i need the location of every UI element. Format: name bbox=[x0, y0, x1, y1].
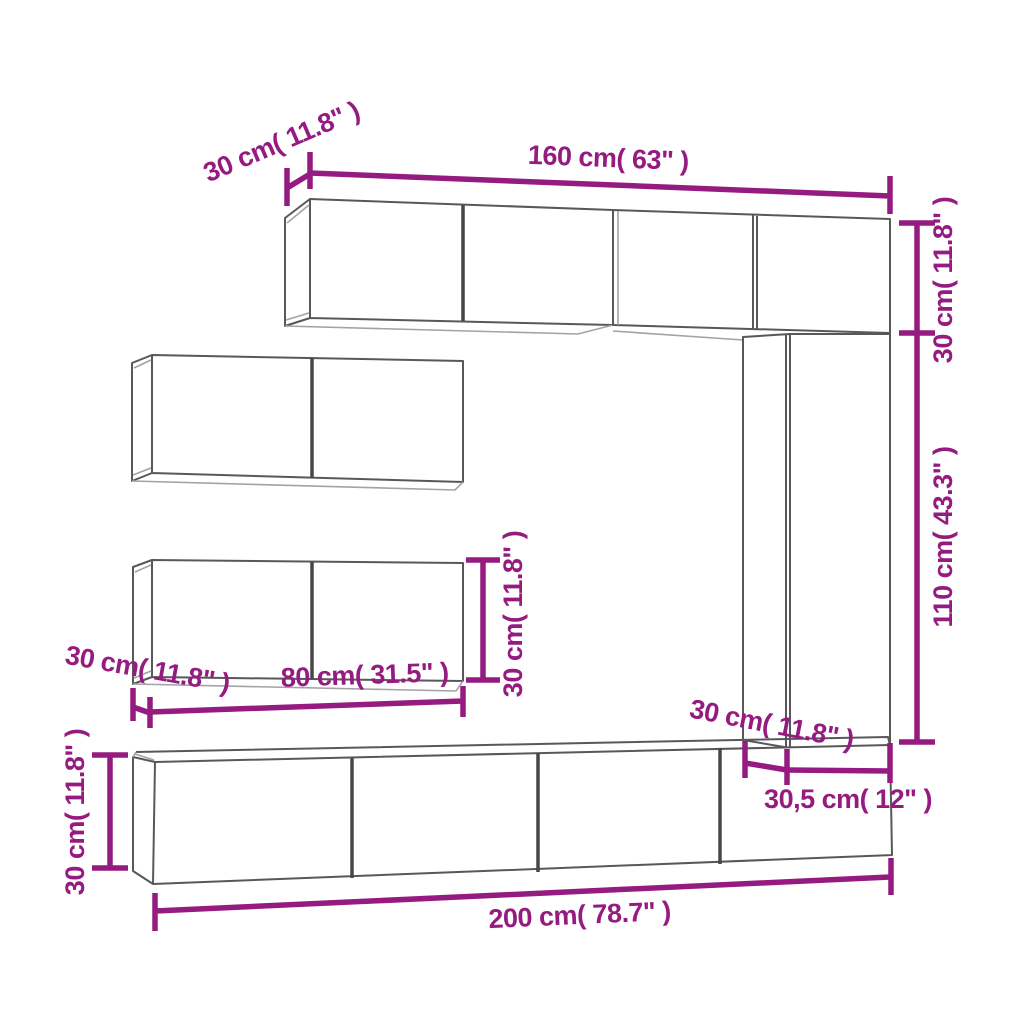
dim-middle-height-line bbox=[466, 560, 500, 680]
dimension-diagram-canvas: 30 cm( 11.8" ) 160 cm( 63" ) 30 cm( 11.8… bbox=[0, 0, 1024, 1024]
dim-right-height-label: 110 cm( 43.3" ) bbox=[928, 447, 958, 628]
dim-middle-width-label: 80 cm( 31.5" ) bbox=[280, 657, 449, 693]
dim-middle-depth-line bbox=[133, 688, 150, 728]
middle-left-cabinet-faces bbox=[132, 355, 463, 482]
dim-middle-height-label: 30 cm( 11.8" ) bbox=[498, 531, 528, 697]
dim-top-width-label: 160 cm( 63" ) bbox=[527, 140, 689, 176]
top-cabinet-row bbox=[285, 199, 890, 340]
dim-bottom-height-line bbox=[92, 755, 128, 868]
dim-right-top-height-label: 30 cm( 11.8" ) bbox=[928, 197, 958, 363]
dim-bottom-width-label: 200 cm( 78.7" ) bbox=[488, 896, 672, 934]
dim-bottom-height-label: 30 cm( 11.8" ) bbox=[60, 729, 90, 895]
dim-top-depth-line bbox=[287, 152, 310, 206]
tv-wall-unit-diagram: 30 cm( 11.8" ) 160 cm( 63" ) 30 cm( 11.8… bbox=[0, 0, 1024, 1024]
middle-left-cabinet bbox=[132, 355, 463, 490]
right-column-faces bbox=[743, 334, 890, 748]
right-column-cabinet bbox=[743, 334, 890, 748]
top-cabinet-right-faces bbox=[613, 210, 890, 333]
top-cabinet-left-faces bbox=[285, 199, 613, 326]
dim-bottom-right-width-label: 30,5 cm( 12" ) bbox=[764, 784, 932, 814]
